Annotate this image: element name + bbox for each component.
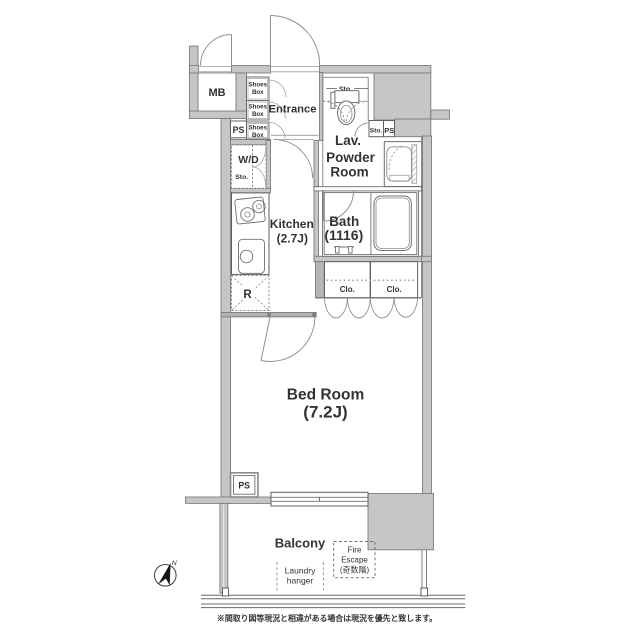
svg-text:Escape: Escape <box>341 556 368 565</box>
svg-text:Powder: Powder <box>326 150 376 165</box>
svg-text:Lav.: Lav. <box>335 133 361 148</box>
svg-text:Bed Room: Bed Room <box>287 386 365 403</box>
svg-text:Room: Room <box>330 164 368 179</box>
svg-text:Shoes: Shoes <box>249 125 268 132</box>
svg-text:Sto.: Sto. <box>370 128 383 135</box>
svg-text:Clo.: Clo. <box>387 285 402 294</box>
svg-text:PS: PS <box>233 125 245 135</box>
svg-text:W/D: W/D <box>238 154 259 166</box>
svg-text:N: N <box>172 560 177 567</box>
svg-text:(2.7J): (2.7J) <box>277 232 308 246</box>
svg-text:Sto.: Sto. <box>235 174 248 181</box>
svg-text:PS: PS <box>238 481 250 491</box>
svg-text:※間取り図等現況と相違がある場合は現況を優先と致します。: ※間取り図等現況と相違がある場合は現況を優先と致します。 <box>217 613 437 623</box>
svg-text:R: R <box>243 289 252 301</box>
svg-text:MB: MB <box>208 87 225 99</box>
svg-text:hanger: hanger <box>287 576 314 586</box>
svg-text:Shoes: Shoes <box>249 82 268 89</box>
svg-text:Fire: Fire <box>348 546 362 555</box>
svg-text:Laundry: Laundry <box>285 566 316 576</box>
svg-text:Box: Box <box>252 111 264 118</box>
svg-text:PS: PS <box>384 126 394 135</box>
svg-text:Box: Box <box>252 89 264 96</box>
svg-text:(7.2J): (7.2J) <box>303 402 347 421</box>
svg-text:Kitchen: Kitchen <box>270 217 314 231</box>
svg-text:Balcony: Balcony <box>275 535 326 550</box>
svg-text:(1116): (1116) <box>324 227 363 243</box>
svg-text:Box: Box <box>252 132 264 139</box>
svg-text:(奇数階): (奇数階) <box>340 565 370 575</box>
svg-text:Entrance: Entrance <box>269 103 317 115</box>
svg-text:Clo.: Clo. <box>340 285 355 294</box>
svg-text:Shoes: Shoes <box>249 104 268 111</box>
